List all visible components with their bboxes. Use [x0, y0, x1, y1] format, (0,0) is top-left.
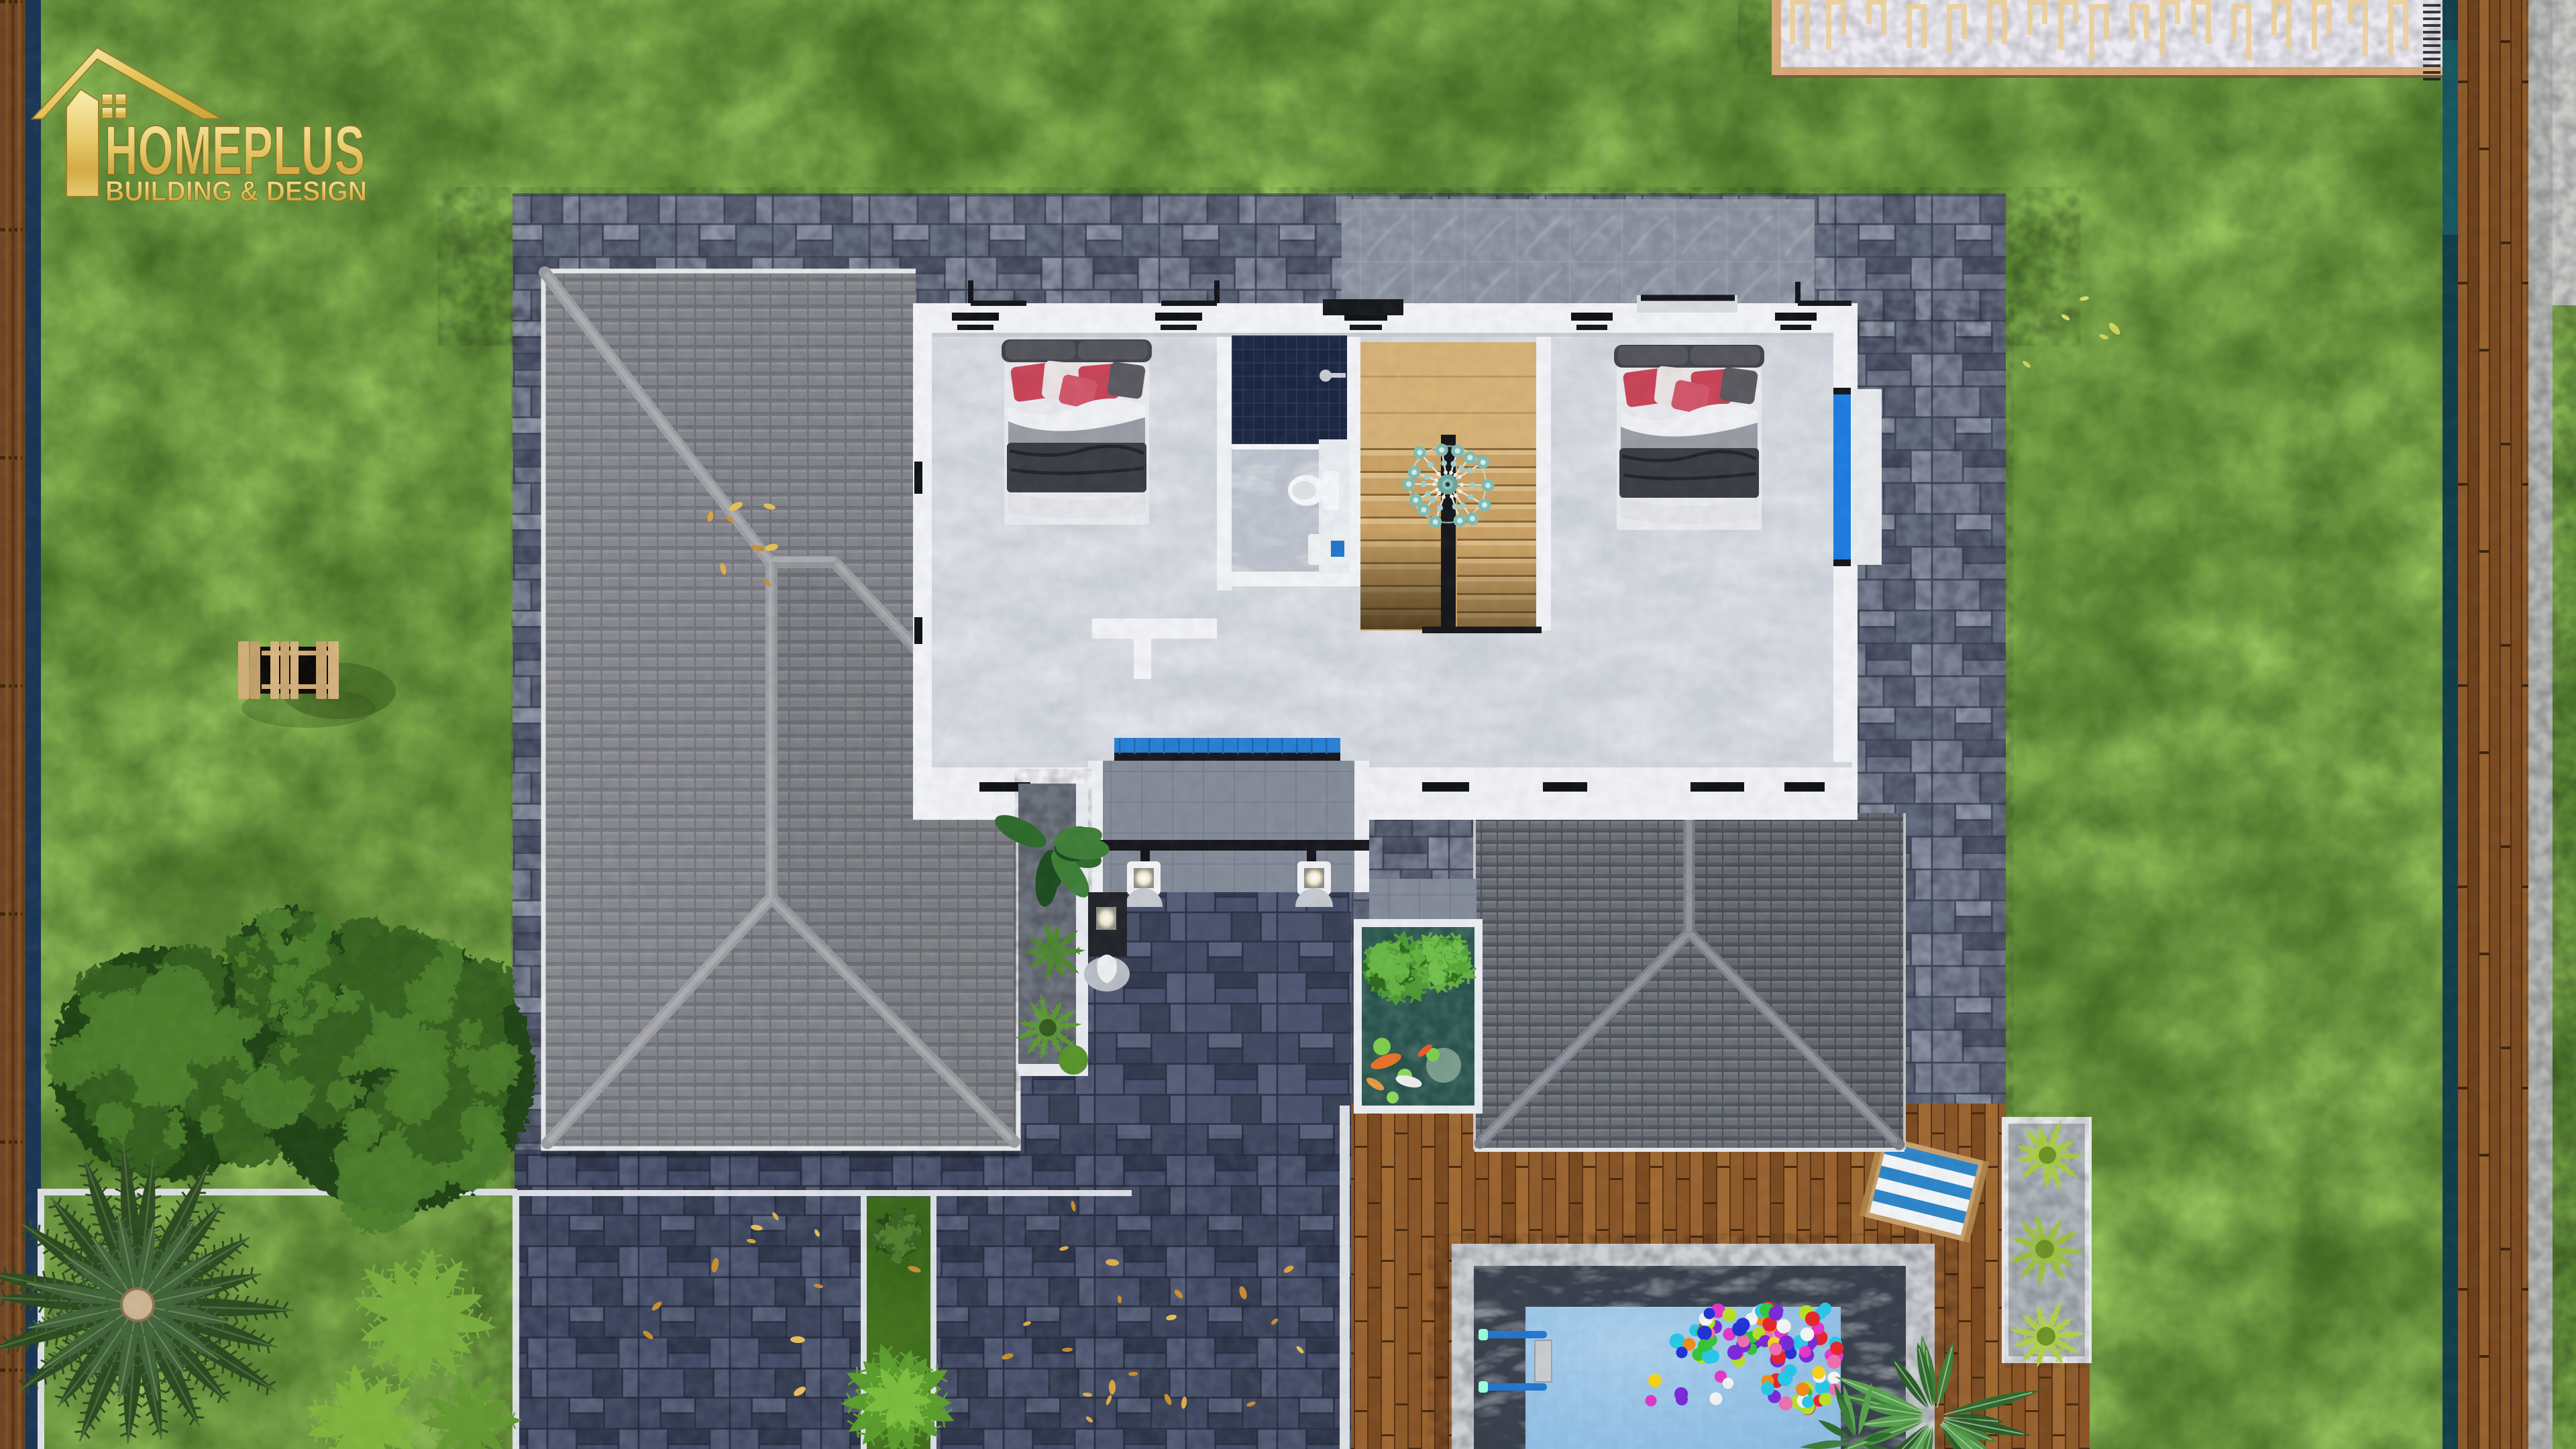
svg-text:BUILDING & DESIGN: BUILDING & DESIGN — [105, 175, 367, 207]
